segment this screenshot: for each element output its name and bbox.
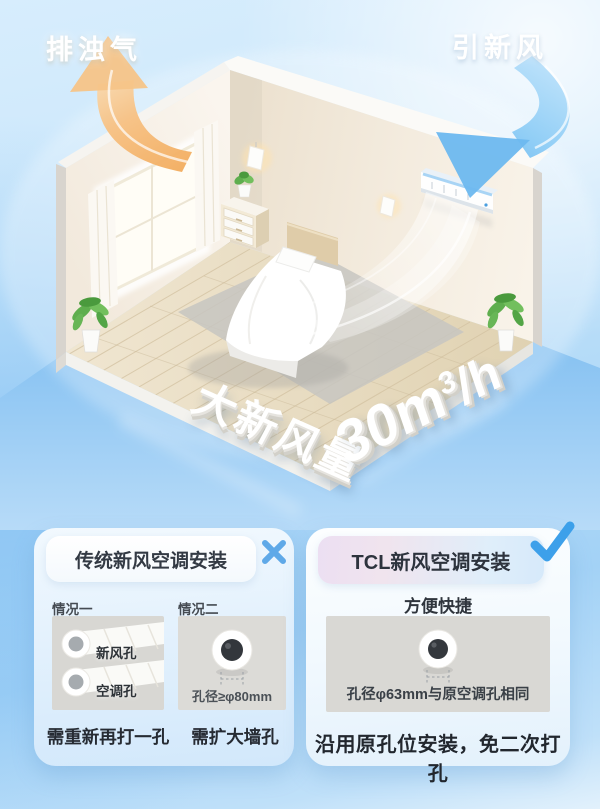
right-wall-edge bbox=[533, 168, 542, 347]
fresh-air-label: 引新风 bbox=[452, 26, 548, 65]
fresh-air-hole-label: 新风孔 bbox=[96, 642, 137, 662]
case-one-label: 情况一 bbox=[52, 598, 93, 618]
tcl-install-title: TCL新风空调安装 bbox=[318, 536, 544, 584]
tcl-hole-image: 孔径φ63mm与原空调孔相同 bbox=[326, 616, 550, 712]
comparison-section: 传统新风空调安装 情况一 情况二 bbox=[0, 528, 600, 809]
case-one-image: 新风孔 空调孔 bbox=[52, 616, 164, 710]
tcl-install-card: TCL新风空调安装 方便快捷 孔径φ63mm与原空调孔相同 bbox=[306, 528, 570, 766]
left-wall-edge bbox=[56, 164, 66, 360]
case-two-image: 孔径≥φ80mm bbox=[178, 616, 286, 710]
traditional-install-title: 传统新风空调安装 bbox=[46, 536, 256, 582]
tcl-subtitle: 方便快捷 bbox=[306, 592, 570, 617]
wall-lamp-right bbox=[377, 194, 401, 218]
ac-hole-label: 空调孔 bbox=[96, 680, 137, 700]
x-icon bbox=[260, 538, 288, 566]
promo-poster: 排浊气 引新风 大新风量 30m3/h 传统新风空调安装 情况一 情况二 bbox=[0, 0, 600, 809]
case-two-caption: 需扩大墙孔 bbox=[180, 724, 290, 749]
tcl-hole-size-note: 孔径φ63mm与原空调孔相同 bbox=[326, 683, 550, 704]
check-icon bbox=[528, 520, 576, 564]
exhaust-air-label: 排浊气 bbox=[46, 28, 142, 67]
case-two-label: 情况二 bbox=[178, 598, 219, 618]
tcl-caption: 沿用原孔位安装，免二次打孔 bbox=[306, 728, 570, 786]
case-one-caption: 需重新再打一孔 bbox=[38, 724, 178, 749]
hole-size-note: 孔径≥φ80mm bbox=[178, 686, 286, 705]
traditional-install-card: 传统新风空调安装 情况一 情况二 bbox=[34, 528, 294, 766]
